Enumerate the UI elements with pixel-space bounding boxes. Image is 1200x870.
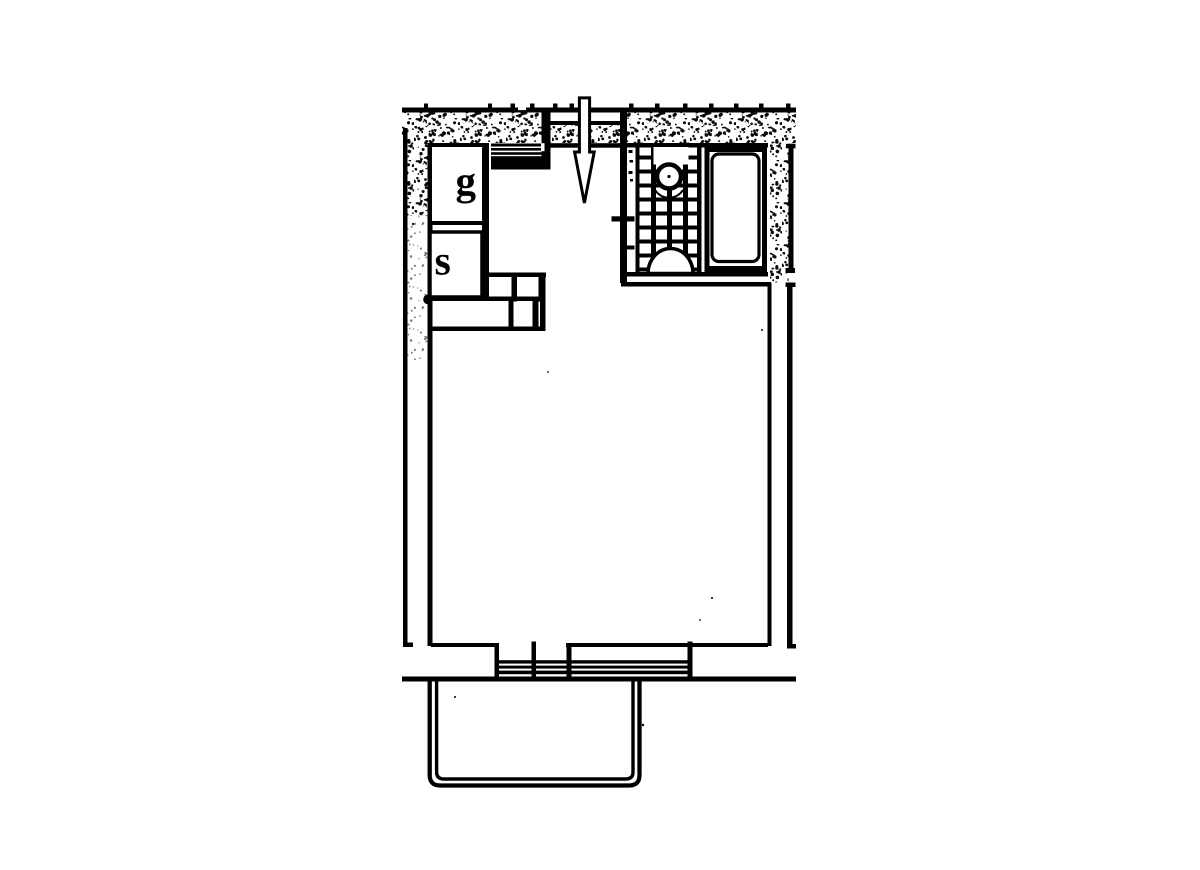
svg-text:s: s	[435, 239, 451, 285]
svg-text:g: g	[456, 158, 477, 205]
